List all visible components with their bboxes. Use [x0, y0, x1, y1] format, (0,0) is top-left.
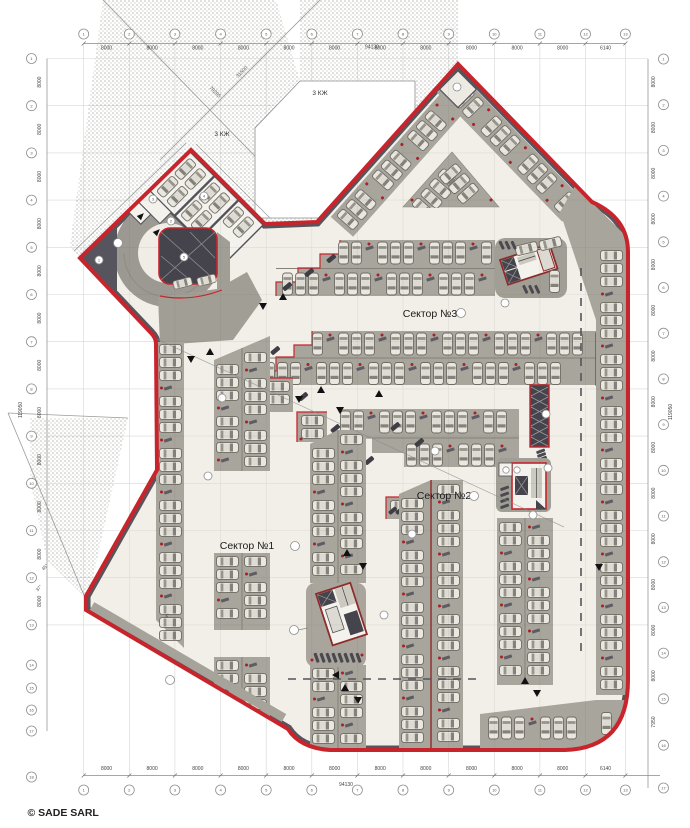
svg-text:94130: 94130: [339, 782, 353, 788]
svg-text:12: 12: [583, 32, 588, 37]
svg-text:8000: 8000: [283, 46, 294, 52]
svg-text:8000: 8000: [192, 766, 203, 772]
svg-text:8000: 8000: [651, 670, 657, 681]
svg-text:8000: 8000: [37, 265, 43, 276]
svg-text:8000: 8000: [651, 167, 657, 178]
svg-text:10: 10: [492, 32, 497, 37]
svg-text:12: 12: [29, 575, 34, 580]
svg-text:8000: 8000: [147, 766, 158, 772]
svg-text:10: 10: [661, 468, 666, 473]
svg-text:8000: 8000: [512, 46, 523, 52]
svg-text:8000: 8000: [329, 766, 340, 772]
svg-text:13: 13: [661, 605, 666, 610]
svg-text:8000: 8000: [651, 76, 657, 87]
svg-text:8000: 8000: [283, 766, 294, 772]
svg-text:3 КЖ: 3 КЖ: [312, 90, 327, 97]
svg-text:14: 14: [29, 663, 34, 668]
svg-text:18: 18: [29, 775, 34, 780]
svg-text:8000: 8000: [651, 396, 657, 407]
svg-text:8000: 8000: [651, 213, 657, 224]
svg-text:8000: 8000: [101, 766, 112, 772]
svg-text:8000: 8000: [37, 124, 43, 135]
svg-text:8000: 8000: [147, 46, 158, 52]
svg-text:8000: 8000: [192, 46, 203, 52]
svg-text:8000: 8000: [375, 766, 386, 772]
svg-text:6140: 6140: [600, 46, 611, 52]
svg-text:8000: 8000: [37, 407, 43, 418]
svg-text:8000: 8000: [37, 501, 43, 512]
svg-text:3 КЖ: 3 КЖ: [214, 131, 229, 138]
svg-text:8000: 8000: [651, 442, 657, 453]
svg-text:13: 13: [623, 32, 628, 37]
svg-text:8000: 8000: [651, 624, 657, 635]
svg-text:8000: 8000: [37, 76, 43, 87]
svg-text:8000: 8000: [420, 46, 431, 52]
svg-text:8000: 8000: [101, 46, 112, 52]
svg-text:8000: 8000: [651, 122, 657, 133]
svg-text:17: 17: [661, 786, 666, 791]
svg-text:15: 15: [661, 696, 666, 701]
svg-text:Сектор №2: Сектор №2: [417, 490, 472, 502]
svg-text:8000: 8000: [329, 46, 340, 52]
svg-text:7950: 7950: [651, 716, 657, 727]
svg-text:8000: 8000: [651, 259, 657, 270]
svg-text:8000: 8000: [466, 766, 477, 772]
svg-text:8000: 8000: [37, 171, 43, 182]
svg-text:16: 16: [29, 708, 34, 713]
svg-text:13: 13: [29, 623, 34, 628]
svg-text:8000: 8000: [466, 46, 477, 52]
svg-text:10: 10: [492, 788, 497, 793]
svg-text:8000: 8000: [651, 533, 657, 544]
svg-text:12: 12: [661, 559, 666, 564]
svg-text:© SADE SARL: © SADE SARL: [28, 807, 100, 819]
svg-text:8000: 8000: [420, 766, 431, 772]
svg-text:8000: 8000: [37, 548, 43, 559]
svg-text:8000: 8000: [512, 766, 523, 772]
svg-text:8000: 8000: [651, 305, 657, 316]
svg-text:16: 16: [661, 743, 666, 748]
svg-text:8000: 8000: [37, 312, 43, 323]
svg-text:8000: 8000: [37, 218, 43, 229]
svg-text:Сектор №3: Сектор №3: [403, 308, 458, 320]
svg-text:12: 12: [583, 788, 588, 793]
svg-text:14: 14: [661, 651, 666, 656]
svg-text:8000: 8000: [238, 766, 249, 772]
svg-text:8000: 8000: [651, 579, 657, 590]
svg-text:8000: 8000: [37, 596, 43, 607]
svg-text:10: 10: [29, 481, 34, 486]
svg-text:8000: 8000: [651, 350, 657, 361]
svg-text:94130: 94130: [365, 45, 379, 51]
svg-text:8000: 8000: [651, 487, 657, 498]
svg-text:8000: 8000: [557, 766, 568, 772]
svg-text:8000: 8000: [37, 454, 43, 465]
svg-text:15: 15: [29, 686, 34, 691]
svg-text:13: 13: [623, 788, 628, 793]
svg-text:8000: 8000: [557, 46, 568, 52]
svg-text:Сектор №1: Сектор №1: [220, 540, 275, 552]
svg-text:119050: 119050: [668, 404, 674, 421]
svg-text:8000: 8000: [37, 360, 43, 371]
svg-text:8000: 8000: [238, 46, 249, 52]
svg-text:6140: 6140: [600, 766, 611, 772]
svg-text:17: 17: [29, 729, 34, 734]
svg-text:119050: 119050: [18, 402, 24, 419]
